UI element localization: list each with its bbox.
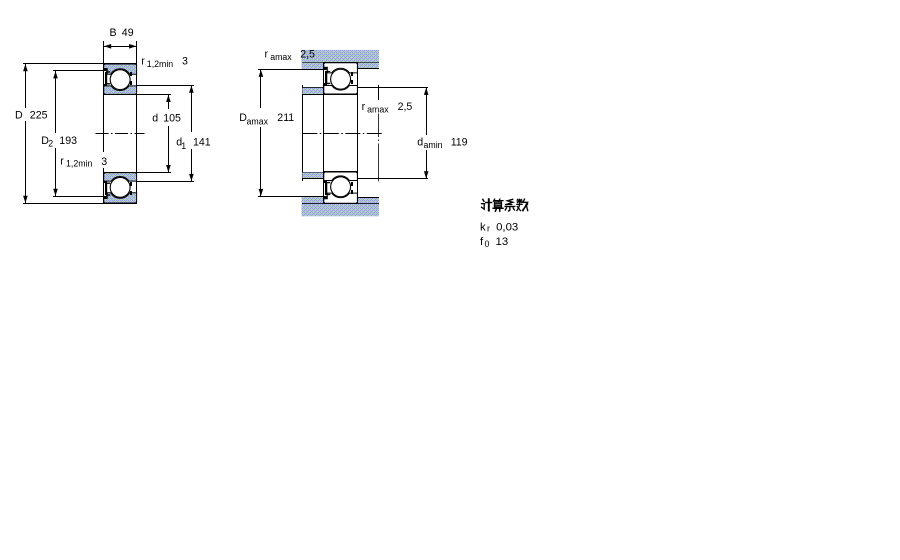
svg-text:141: 141 xyxy=(193,137,211,149)
svg-text:1,2min: 1,2min xyxy=(147,59,174,69)
svg-text:k: k xyxy=(480,222,486,234)
svg-text:0,03: 0,03 xyxy=(496,222,518,234)
svg-text:211: 211 xyxy=(277,112,294,124)
svg-text:2: 2 xyxy=(48,139,53,149)
svg-text:D: D xyxy=(15,110,23,122)
svg-text:119: 119 xyxy=(451,137,468,149)
svg-text:49: 49 xyxy=(122,27,134,39)
svg-text:amin: amin xyxy=(424,140,443,150)
svg-text:193: 193 xyxy=(59,135,77,147)
svg-text:2,5: 2,5 xyxy=(300,48,315,60)
svg-text:d: d xyxy=(417,137,423,149)
svg-text:2,5: 2,5 xyxy=(398,101,413,113)
svg-text:3: 3 xyxy=(101,156,107,168)
svg-text:amax: amax xyxy=(247,116,269,126)
svg-text:r: r xyxy=(141,55,145,67)
svg-text:B: B xyxy=(110,27,117,39)
svg-text:d: d xyxy=(152,113,158,125)
svg-text:r: r xyxy=(265,48,269,60)
svg-text:amax: amax xyxy=(367,104,389,114)
svg-text:r: r xyxy=(60,156,64,168)
svg-text:13: 13 xyxy=(496,236,509,248)
svg-text:225: 225 xyxy=(30,110,48,122)
svg-text:r: r xyxy=(487,224,490,234)
svg-text:amax: amax xyxy=(270,52,292,62)
svg-text:0: 0 xyxy=(485,239,490,249)
svg-text:r: r xyxy=(362,101,366,113)
svg-text:105: 105 xyxy=(163,113,181,125)
svg-text:1,2min: 1,2min xyxy=(66,159,93,169)
svg-text:1: 1 xyxy=(181,141,186,151)
svg-text:3: 3 xyxy=(182,55,188,67)
